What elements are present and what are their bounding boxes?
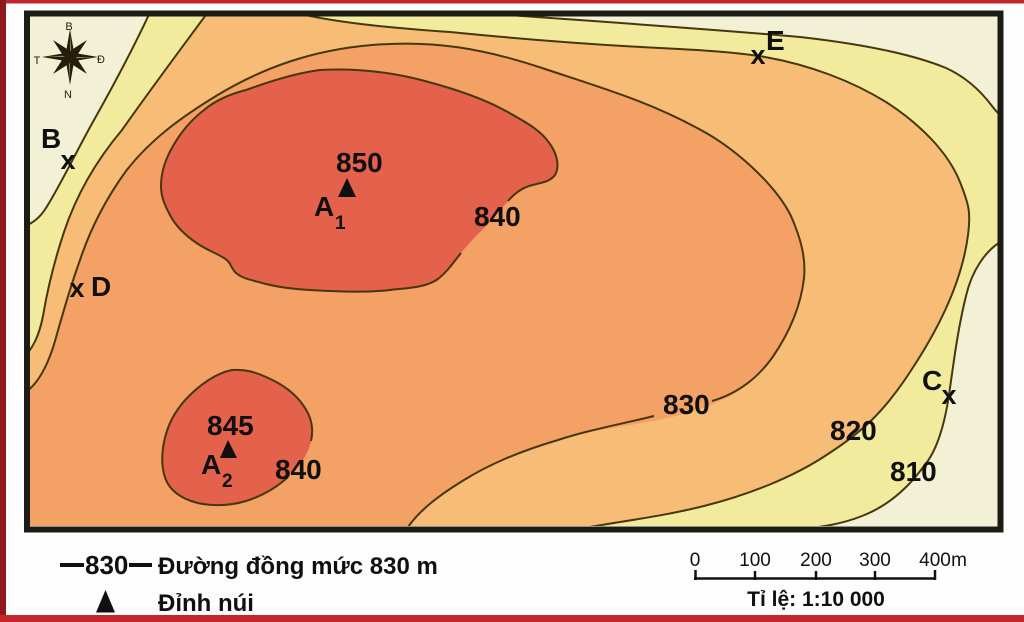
svg-text:Đ: Đ <box>97 54 105 66</box>
svg-text:Đỉnh núi: Đỉnh núi <box>158 590 254 617</box>
svg-text:Tỉ lệ: 1:10 000: Tỉ lệ: 1:10 000 <box>747 588 885 611</box>
svg-text:845: 845 <box>207 410 254 441</box>
svg-text:T: T <box>34 55 41 67</box>
svg-text:E: E <box>766 25 785 56</box>
svg-text:0: 0 <box>690 550 701 571</box>
svg-text:2: 2 <box>222 471 233 492</box>
svg-text:B: B <box>41 123 61 154</box>
svg-text:820: 820 <box>830 415 877 446</box>
svg-text:100: 100 <box>739 550 771 571</box>
svg-text:830: 830 <box>85 550 128 580</box>
svg-text:x: x <box>69 273 84 303</box>
svg-text:C: C <box>922 365 942 396</box>
svg-text:300: 300 <box>859 550 891 571</box>
svg-text:840: 840 <box>474 201 521 232</box>
svg-text:Đường đồng mức 830 m: Đường đồng mức 830 m <box>158 553 438 580</box>
svg-text:850: 850 <box>336 147 383 178</box>
svg-text:x: x <box>750 40 765 70</box>
svg-text:830: 830 <box>663 389 710 420</box>
svg-text:x: x <box>60 145 75 175</box>
svg-text:810: 810 <box>890 456 937 487</box>
svg-text:x: x <box>941 380 956 410</box>
svg-text:A: A <box>201 449 221 480</box>
svg-text:D: D <box>91 271 111 302</box>
svg-text:N: N <box>64 89 72 101</box>
svg-text:200: 200 <box>800 550 832 571</box>
svg-text:400: 400 <box>919 550 951 571</box>
svg-text:A: A <box>314 191 334 222</box>
svg-text:B: B <box>65 21 72 33</box>
svg-text:m: m <box>951 550 967 571</box>
svg-text:1: 1 <box>335 213 346 234</box>
svg-text:840: 840 <box>275 454 322 485</box>
